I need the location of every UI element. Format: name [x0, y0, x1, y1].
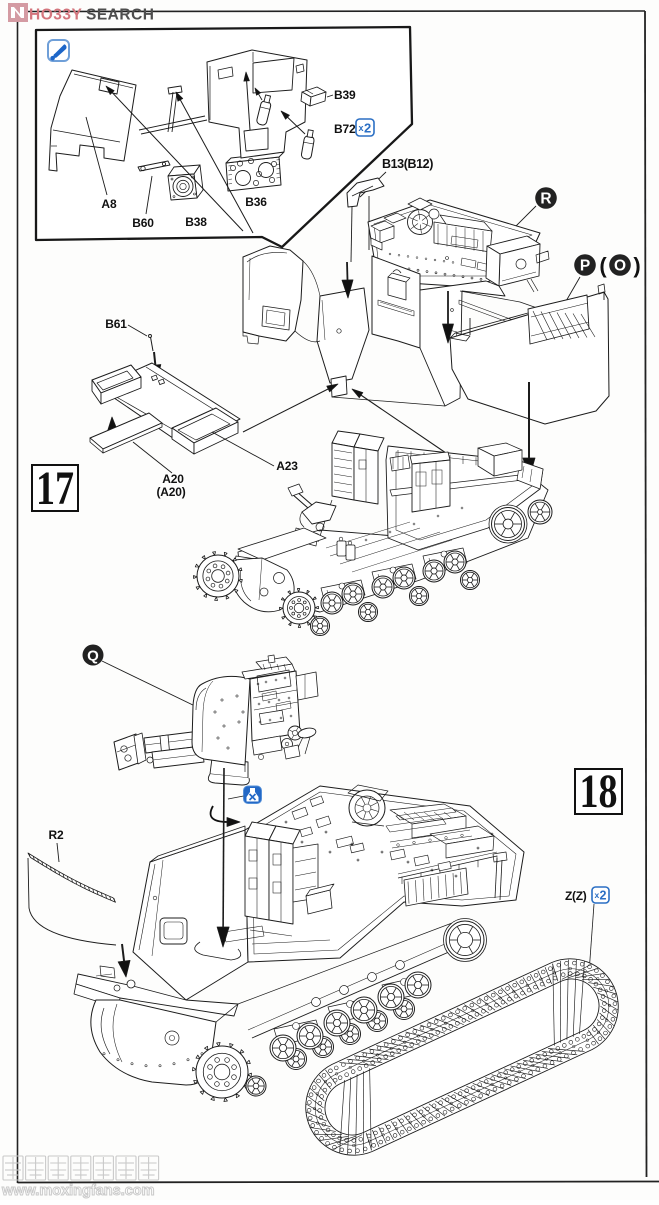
- svg-text:HO33Y: HO33Y: [29, 7, 82, 24]
- svg-text:B39: B39: [334, 88, 356, 102]
- svg-text:(A20): (A20): [156, 485, 185, 499]
- svg-text:(: (: [599, 253, 607, 278]
- svg-text:B72: B72: [334, 122, 356, 136]
- svg-text:SEARCH: SEARCH: [86, 7, 154, 24]
- svg-text:B38: B38: [185, 215, 207, 229]
- svg-text:O: O: [614, 258, 626, 275]
- svg-text:): ): [633, 253, 640, 278]
- svg-text:x: x: [359, 123, 364, 133]
- svg-text:B60: B60: [132, 216, 154, 230]
- svg-text:P: P: [580, 258, 590, 275]
- svg-text:R2: R2: [49, 828, 64, 842]
- svg-text:17: 17: [36, 462, 74, 515]
- svg-text:R: R: [540, 191, 551, 208]
- svg-text:A23: A23: [276, 459, 298, 473]
- svg-text:B61: B61: [105, 317, 127, 331]
- svg-text:A20: A20: [162, 472, 184, 486]
- svg-text:2: 2: [600, 889, 607, 903]
- svg-text:Z(Z): Z(Z): [565, 889, 587, 903]
- svg-text:B13(B12): B13(B12): [382, 157, 433, 171]
- svg-text:Q: Q: [87, 647, 99, 664]
- svg-text:A8: A8: [101, 197, 117, 211]
- svg-text:18: 18: [580, 765, 618, 818]
- svg-text:B36: B36: [245, 195, 267, 209]
- svg-text:www.moxingfans.com: www.moxingfans.com: [1, 1183, 155, 1199]
- svg-text:2: 2: [364, 121, 371, 136]
